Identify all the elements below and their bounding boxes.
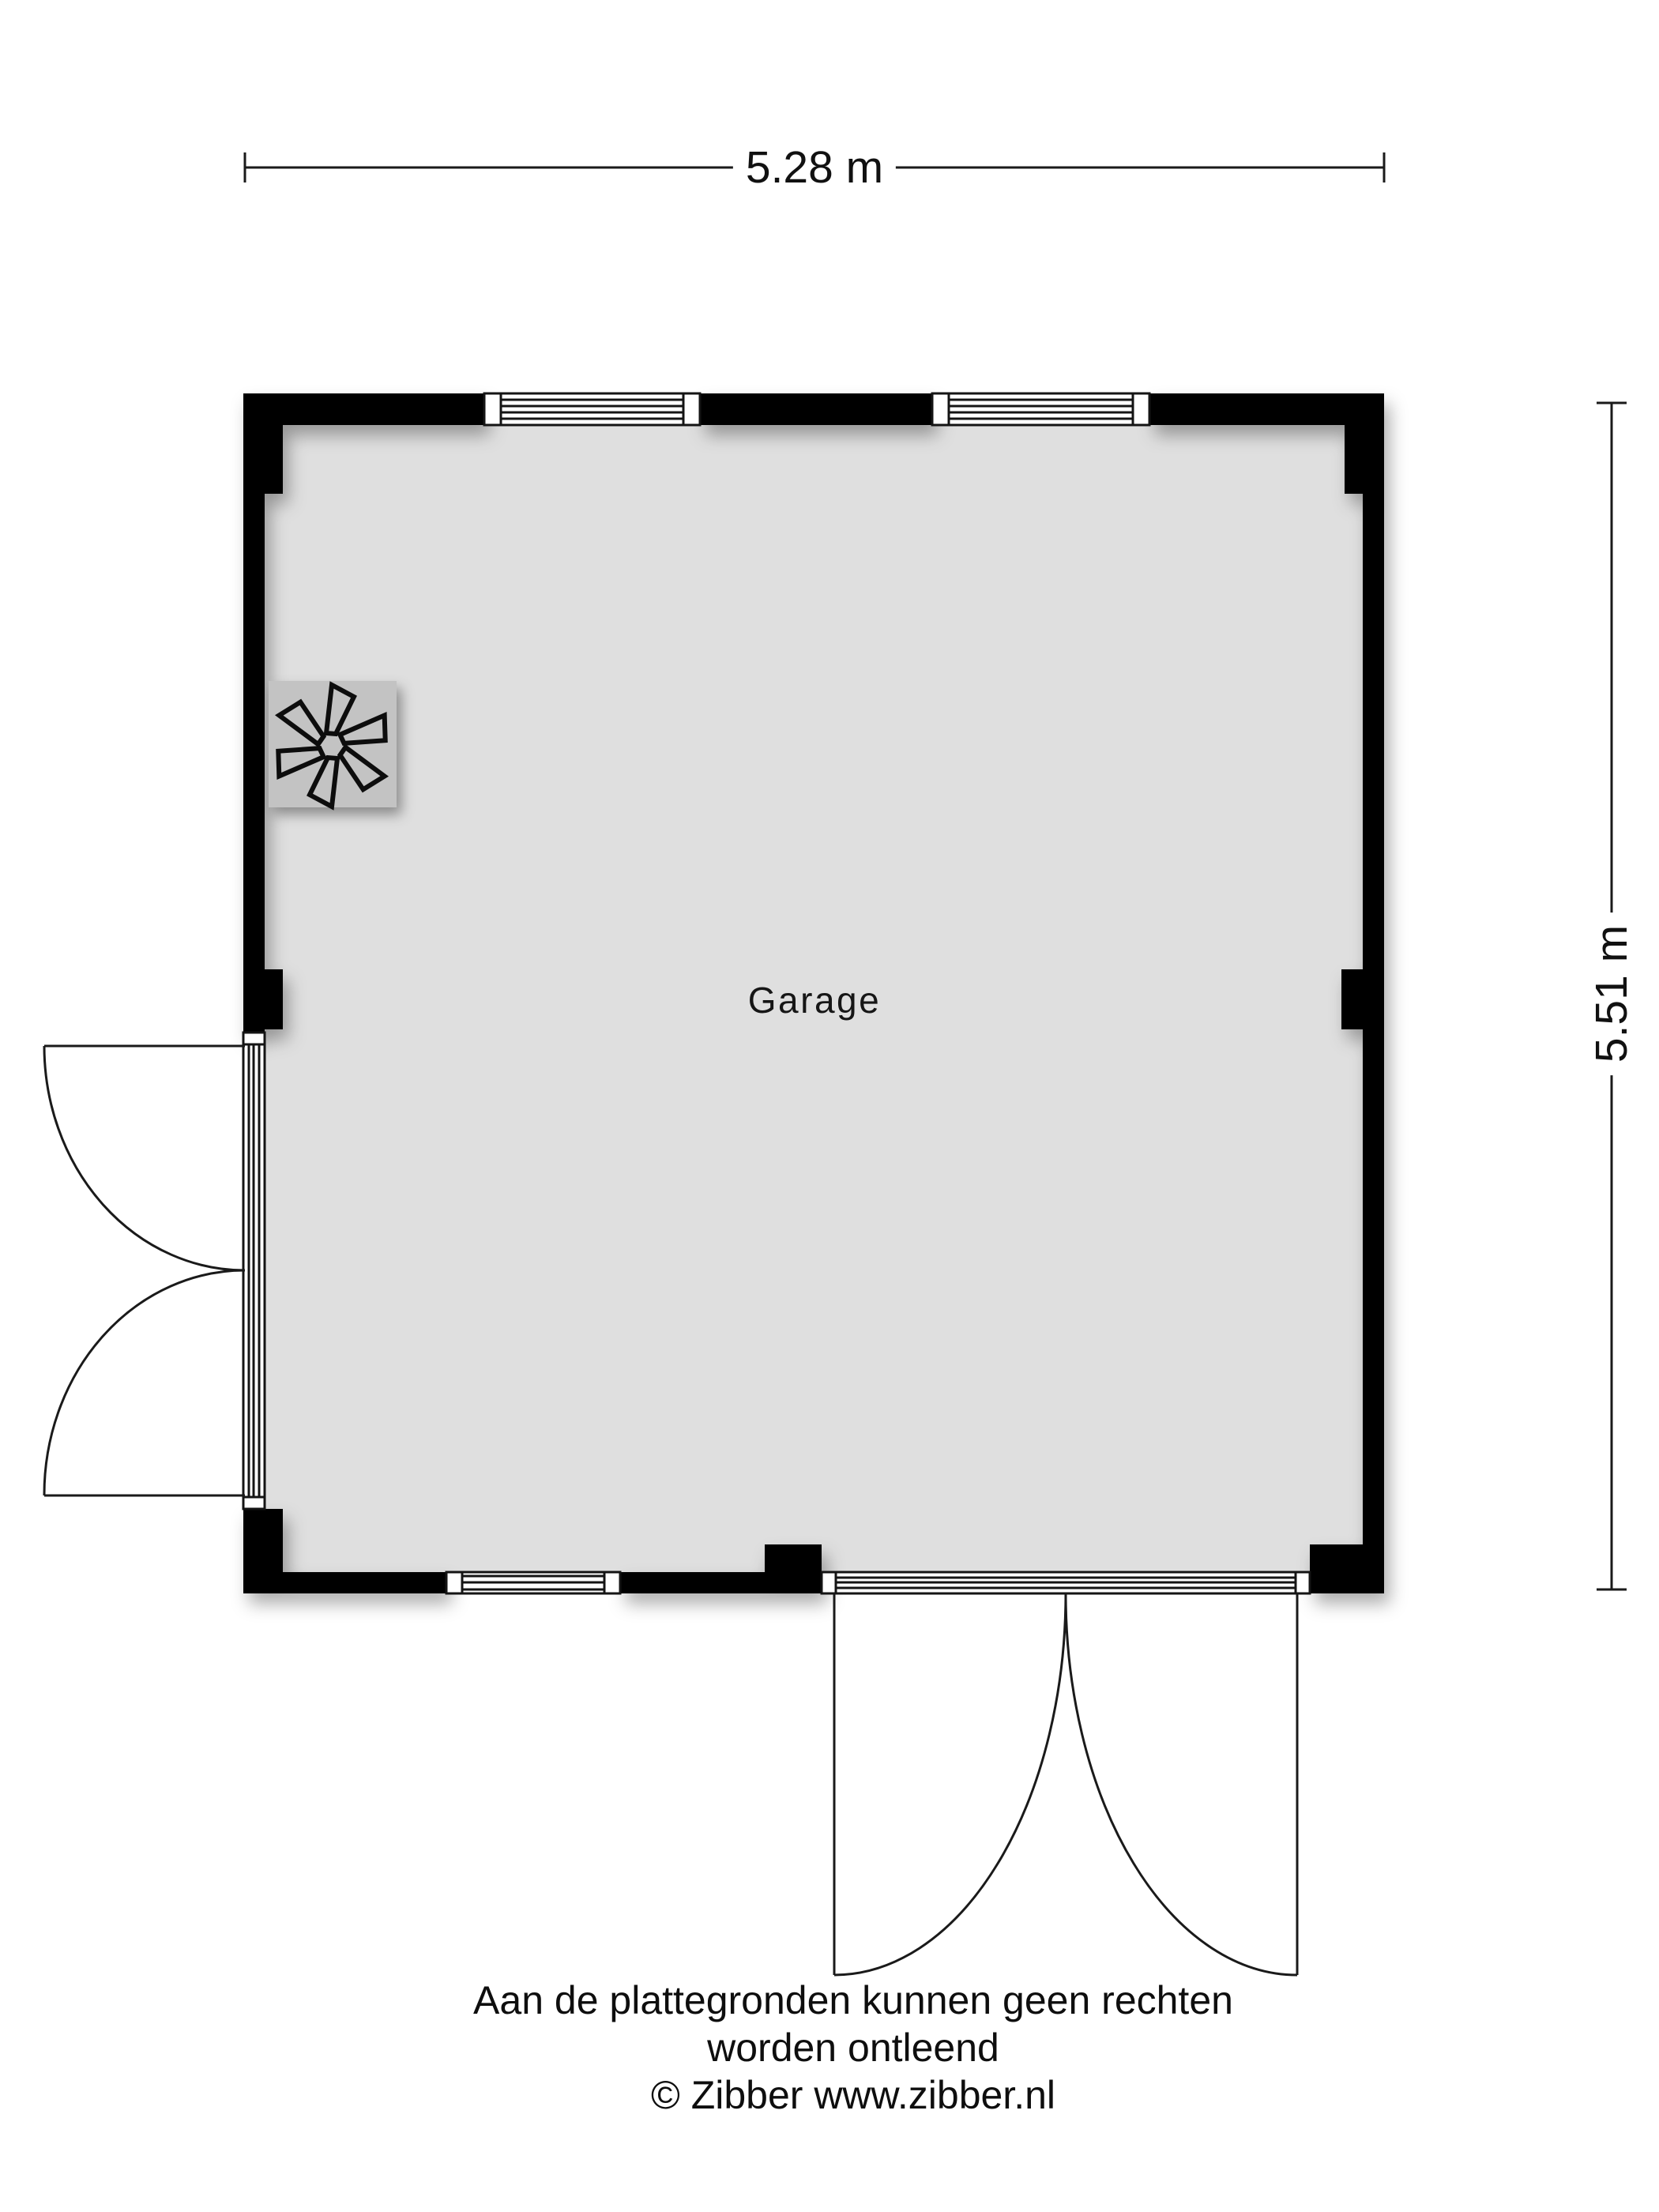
room-label-garage: Garage bbox=[748, 979, 881, 1021]
footer-copyright-line: © Zibber www.zibber.nl bbox=[450, 2071, 1256, 2119]
window-bottom bbox=[446, 1572, 620, 1593]
footer-disclaimer: Aan de plattegronden kunnen geen rechten… bbox=[450, 1977, 1256, 2119]
door-left-swing bbox=[44, 1046, 245, 1495]
door-bottom-swing bbox=[834, 1593, 1297, 1975]
window-top-left bbox=[484, 393, 700, 425]
width-dimension-label: 5.28 m bbox=[733, 141, 896, 194]
fan-unit bbox=[268, 681, 397, 807]
door-frame-bottom bbox=[822, 1572, 1310, 1593]
footer-disclaimer-line1: Aan de plattegronden kunnen geen rechten… bbox=[450, 1977, 1256, 2071]
floorplan-drawing bbox=[0, 0, 1659, 2212]
door-frame-left bbox=[243, 1033, 265, 1509]
height-dimension-label: 5.51 m bbox=[1586, 912, 1638, 1075]
floorplan-page: 5.28 m 5.51 m Garage Aan de plattegronde… bbox=[0, 0, 1659, 2212]
window-top-right bbox=[932, 393, 1149, 425]
